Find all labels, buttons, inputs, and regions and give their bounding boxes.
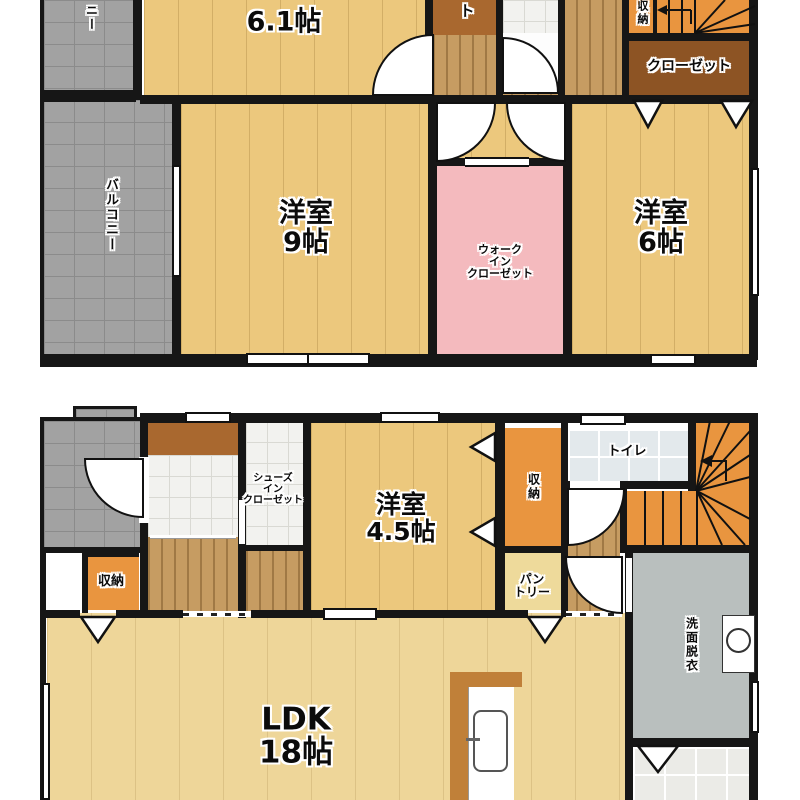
door-marker — [470, 517, 496, 547]
door-marker — [80, 616, 116, 643]
wall — [558, 0, 565, 95]
storage-1f-left-label: 収納 — [98, 575, 124, 589]
toilet-label: トイレ — [607, 445, 646, 459]
window-tick — [307, 353, 309, 365]
wall — [620, 545, 757, 553]
wall — [41, 417, 140, 421]
window — [323, 608, 377, 620]
wall — [133, 0, 142, 100]
wall — [496, 0, 503, 95]
window — [172, 165, 181, 277]
shoes-in-closet-label: シューズ イン クローゼット — [243, 474, 303, 506]
kitchen-counter-side — [450, 687, 468, 800]
closet-2f-small-label: ト — [459, 3, 474, 19]
step-boundary — [183, 611, 251, 617]
entrance-hall — [148, 537, 238, 613]
wall — [622, 33, 757, 41]
bedroom-6-label: 洋室 6帖 — [634, 199, 688, 257]
storage-1f-right-label: 収納 — [527, 473, 540, 501]
wall — [428, 100, 437, 358]
window — [580, 414, 626, 425]
door-marker — [720, 100, 753, 128]
washroom-label: 洗面脱衣 — [685, 617, 698, 673]
door-opening — [570, 481, 620, 489]
door-swing-arc — [507, 103, 565, 161]
door-swing-arc — [437, 103, 495, 161]
stairs-2f-treads — [655, 0, 755, 33]
alcove-2f-window-floor — [503, 0, 560, 33]
wall — [82, 551, 88, 613]
storage-2f-label: 収納 — [636, 0, 648, 26]
kitchen-counter — [450, 672, 522, 687]
window — [751, 681, 759, 733]
hall-below-sic — [246, 548, 303, 613]
wall — [251, 610, 323, 618]
wall — [40, 417, 44, 553]
room-6-1-label: 6.1帖 — [247, 7, 322, 36]
door-swing-arc — [373, 35, 433, 95]
bedroom-9-label: 洋室 9帖 — [279, 199, 333, 257]
floor-plan-canvas: 6.1帖 ト 収納 クローゼット ニー バルコニー 洋室 9帖 ウォーク イン … — [0, 0, 800, 800]
window — [650, 354, 696, 365]
wall — [116, 610, 183, 618]
wall — [377, 610, 528, 618]
pantry-label: パン トリー — [514, 573, 550, 599]
window — [380, 412, 440, 423]
door-swing-arc — [503, 38, 558, 93]
entrance-step-line — [150, 535, 236, 539]
bedroom-4-5-label: 洋室 4.5帖 — [366, 491, 435, 545]
door-marker — [637, 745, 679, 773]
wall — [688, 421, 696, 491]
door-marker — [633, 100, 663, 128]
door-swing-arc — [566, 557, 622, 613]
door-marker — [527, 616, 563, 643]
window — [751, 168, 759, 296]
wall — [238, 545, 308, 551]
door-opening — [626, 558, 632, 612]
kitchen-faucet — [466, 738, 480, 741]
wall — [495, 421, 505, 617]
wall — [303, 413, 311, 617]
wall — [82, 551, 139, 557]
closet-2f-label: クローゼット — [647, 59, 731, 74]
window — [42, 683, 50, 800]
balcony-label: バルコニー — [103, 178, 117, 253]
door-swing-arc — [568, 489, 624, 545]
window — [185, 412, 231, 423]
ldk-label: LDK 18帖 — [259, 704, 333, 771]
door-marker — [470, 432, 496, 462]
stairs-1f-lower-treads — [627, 491, 750, 545]
door-opening — [239, 500, 245, 544]
wall — [44, 610, 80, 618]
stairs-1f-upper-treads — [696, 421, 750, 491]
entrance — [148, 455, 238, 537]
wall — [622, 0, 629, 100]
kitchen-sink — [473, 710, 508, 772]
wall — [44, 98, 136, 102]
balcony-upper-label: ニー — [85, 4, 98, 32]
shoe-cabinet — [148, 423, 238, 455]
washbasin-bowl — [726, 628, 751, 653]
wall — [140, 413, 752, 423]
wall — [40, 0, 44, 367]
walk-in-closet-label: ウォーク イン クローゼット — [467, 244, 533, 280]
front-door-swing-arc — [85, 459, 143, 517]
wall — [496, 546, 568, 553]
